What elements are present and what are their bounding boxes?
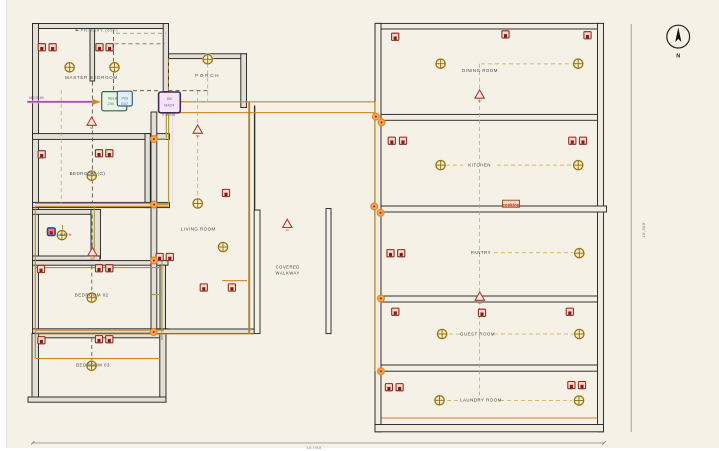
svg-text:PRIMARY (60F): PRIMARY (60F) [81, 29, 119, 33]
svg-text:SD: SD [285, 228, 289, 232]
svg-text:SD: SD [478, 301, 482, 305]
svg-text:G07: G07 [121, 102, 128, 106]
svg-text:DINING ROOM: DINING ROOM [462, 68, 498, 73]
svg-text:cooktop: cooktop [502, 202, 519, 207]
svg-text:BEDROOM 02: BEDROOM 02 [75, 293, 109, 298]
svg-text:BEDROOM 03: BEDROOM 03 [76, 362, 110, 367]
svg-text:SD: SD [91, 256, 95, 260]
svg-text:BATH: BATH [60, 233, 72, 237]
svg-text:S.B/DB: S.B/DB [162, 113, 175, 117]
svg-text:GUEST ROOM: GUEST ROOM [460, 331, 495, 336]
svg-text:N: N [676, 54, 680, 60]
svg-text:KITCHEN: KITCHEN [468, 162, 491, 167]
svg-text:SBLA: SBLA [108, 96, 118, 100]
svg-text:SD: SD [196, 134, 200, 138]
svg-text:SD: SD [478, 99, 482, 103]
svg-text:PORCH: PORCH [195, 73, 220, 78]
svg-text:P08: P08 [121, 96, 128, 100]
svg-text:LIVING ROOM: LIVING ROOM [181, 227, 216, 232]
svg-text:MS.G 1B: MS.G 1B [29, 96, 44, 100]
svg-text:BEDROOM (G): BEDROOM (G) [70, 171, 106, 176]
svg-text:DB: DB [167, 97, 173, 101]
svg-text:COVERED: COVERED [276, 264, 300, 269]
svg-text:LAUNDRY ROOM: LAUNDRY ROOM [460, 398, 502, 403]
svg-text:SD: SD [90, 126, 94, 130]
svg-text:24V: 24V [108, 102, 115, 106]
svg-text:19,388: 19,388 [641, 222, 646, 238]
svg-text:16,088: 16,088 [306, 445, 322, 450]
svg-text:WALKWAY: WALKWAY [276, 271, 300, 276]
svg-text:MA24: MA24 [164, 103, 174, 107]
svg-text:PANTRY: PANTRY [471, 250, 491, 255]
svg-text:MASTER BEDROOM: MASTER BEDROOM [65, 75, 118, 80]
